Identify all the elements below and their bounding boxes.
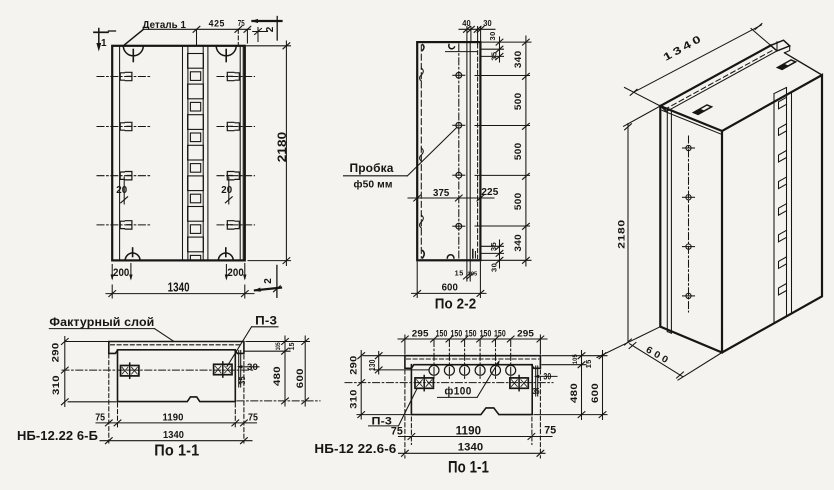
svg-text:15: 15 [586,359,593,368]
svg-text:310: 310 [51,375,62,395]
svg-text:15: 15 [289,342,296,350]
svg-text:2180: 2180 [277,132,289,163]
svg-text:480: 480 [272,366,283,386]
svg-text:105: 105 [572,354,579,364]
svg-text:295: 295 [412,329,429,340]
svg-text:ф50 мм: ф50 мм [354,179,393,191]
svg-text:225: 225 [481,186,498,198]
svg-text:150: 150 [480,329,492,340]
svg-text:1340: 1340 [458,441,484,453]
svg-text:75: 75 [544,425,556,437]
svg-text:500: 500 [513,193,523,211]
svg-text:75: 75 [238,19,245,28]
svg-text:30: 30 [247,362,258,373]
svg-text:200: 200 [227,267,244,279]
svg-text:75: 75 [391,425,403,437]
svg-text:150: 150 [451,329,463,340]
svg-text:НБ-12.22 6-Б: НБ-12.22 6-Б [17,429,98,443]
svg-text:290: 290 [50,342,61,362]
svg-text:1190: 1190 [163,412,184,423]
svg-text:1190: 1190 [456,426,482,438]
svg-text:150: 150 [436,329,448,340]
svg-text:75: 75 [95,412,105,423]
svg-text:20: 20 [221,185,232,196]
svg-text:290: 290 [349,355,360,374]
svg-text:340: 340 [513,51,523,69]
svg-text:30: 30 [490,263,499,272]
svg-text:НБ-12 22.6-6: НБ-12 22.6-6 [314,442,396,456]
svg-text:500: 500 [513,143,523,161]
svg-text:20: 20 [116,185,127,196]
svg-text:150: 150 [465,329,477,340]
svg-text:200: 200 [113,267,130,279]
svg-text:600: 600 [295,368,306,388]
svg-text:Пробка: Пробка [350,163,395,175]
svg-text:1: 1 [101,38,107,49]
svg-text:130: 130 [368,359,377,371]
svg-text:35: 35 [238,376,247,385]
svg-text:Фактурный слой: Фактурный слой [49,317,154,329]
svg-text:П-3: П-3 [255,314,277,328]
svg-text:30: 30 [488,31,497,40]
svg-text:375: 375 [433,187,449,199]
svg-text:1340: 1340 [163,430,184,441]
svg-text:425: 425 [209,19,225,29]
svg-text:480: 480 [569,383,580,403]
svg-text:По 1-1: По 1-1 [448,458,489,477]
svg-text:340: 340 [513,234,523,252]
svg-text:По 2-2: По 2-2 [435,297,477,313]
svg-text:2: 2 [265,26,276,32]
svg-text:150: 150 [494,329,506,340]
svg-text:105: 105 [467,271,478,277]
svg-text:1340: 1340 [661,32,705,64]
svg-text:600: 600 [644,344,673,367]
svg-text:2180: 2180 [616,219,626,249]
svg-text:15: 15 [455,268,464,277]
svg-text:35: 35 [533,386,540,396]
svg-text:ф100: ф100 [445,385,472,397]
svg-text:1340: 1340 [168,281,190,295]
svg-text:105: 105 [275,342,282,350]
svg-text:2: 2 [263,278,274,284]
svg-text:35: 35 [489,242,498,251]
svg-text:500: 500 [513,93,523,111]
svg-text:600: 600 [590,383,601,403]
svg-text:75: 75 [248,412,258,423]
svg-text:По 1-1: По 1-1 [154,443,199,460]
svg-text:35: 35 [490,52,499,61]
svg-text:30: 30 [543,372,551,382]
svg-text:295: 295 [517,329,534,340]
svg-text:30: 30 [483,18,492,28]
svg-text:40: 40 [462,18,471,28]
svg-text:310: 310 [349,389,360,408]
svg-text:600: 600 [442,283,459,294]
